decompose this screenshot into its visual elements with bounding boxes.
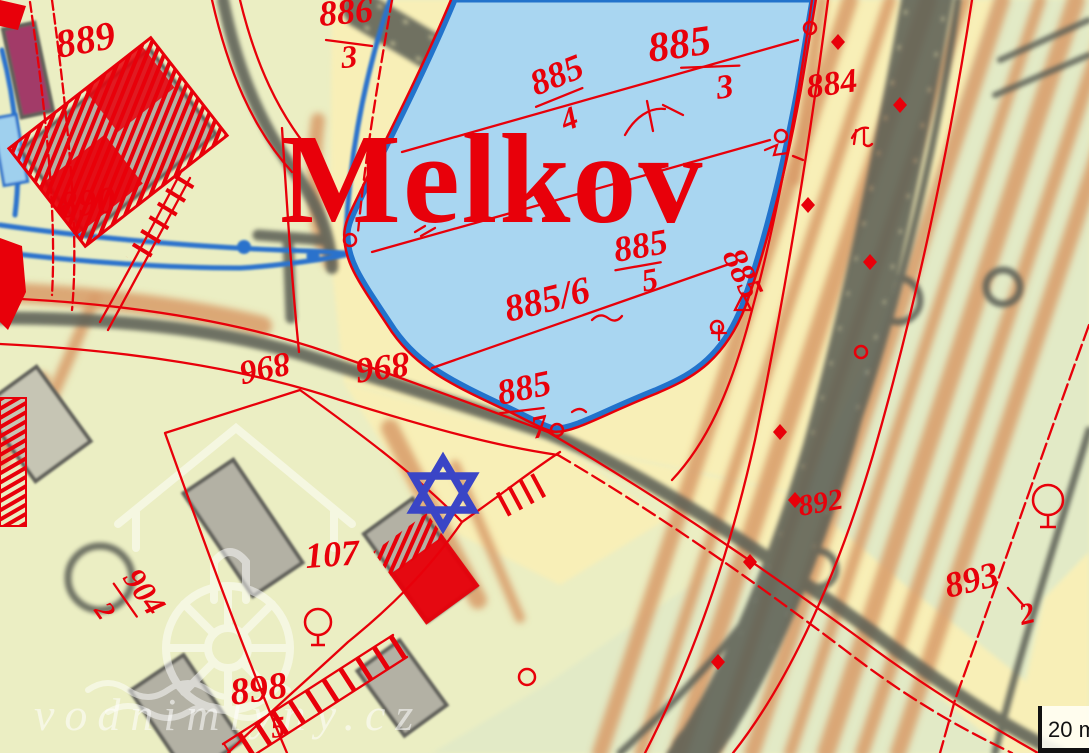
parcel-label-896-b: 896	[353, 344, 412, 391]
hatched-strip	[0, 398, 26, 526]
svg-text:898: 898	[227, 664, 289, 714]
scale-bar-label: 20 m	[1048, 717, 1089, 742]
parcel-label-107: 107	[304, 532, 363, 576]
parcel-label-884: 884	[804, 62, 860, 106]
svg-text:885: 885	[645, 18, 714, 72]
svg-text:3: 3	[338, 38, 358, 75]
svg-text:886: 886	[317, 0, 374, 34]
scale-bar: 20 m	[1038, 706, 1089, 753]
parcel-label-890: 890	[57, 179, 118, 227]
place-name-label: Melkov	[280, 108, 704, 250]
pond-dot	[237, 240, 251, 254]
watermark-text: vodnimlyny.cz	[34, 689, 423, 740]
map-canvas[interactable]: vodnimlyny.cz	[0, 0, 1089, 753]
pond-dot	[307, 250, 320, 263]
historical-map-viewport[interactable]: vodnimlyny.cz	[0, 0, 1089, 753]
